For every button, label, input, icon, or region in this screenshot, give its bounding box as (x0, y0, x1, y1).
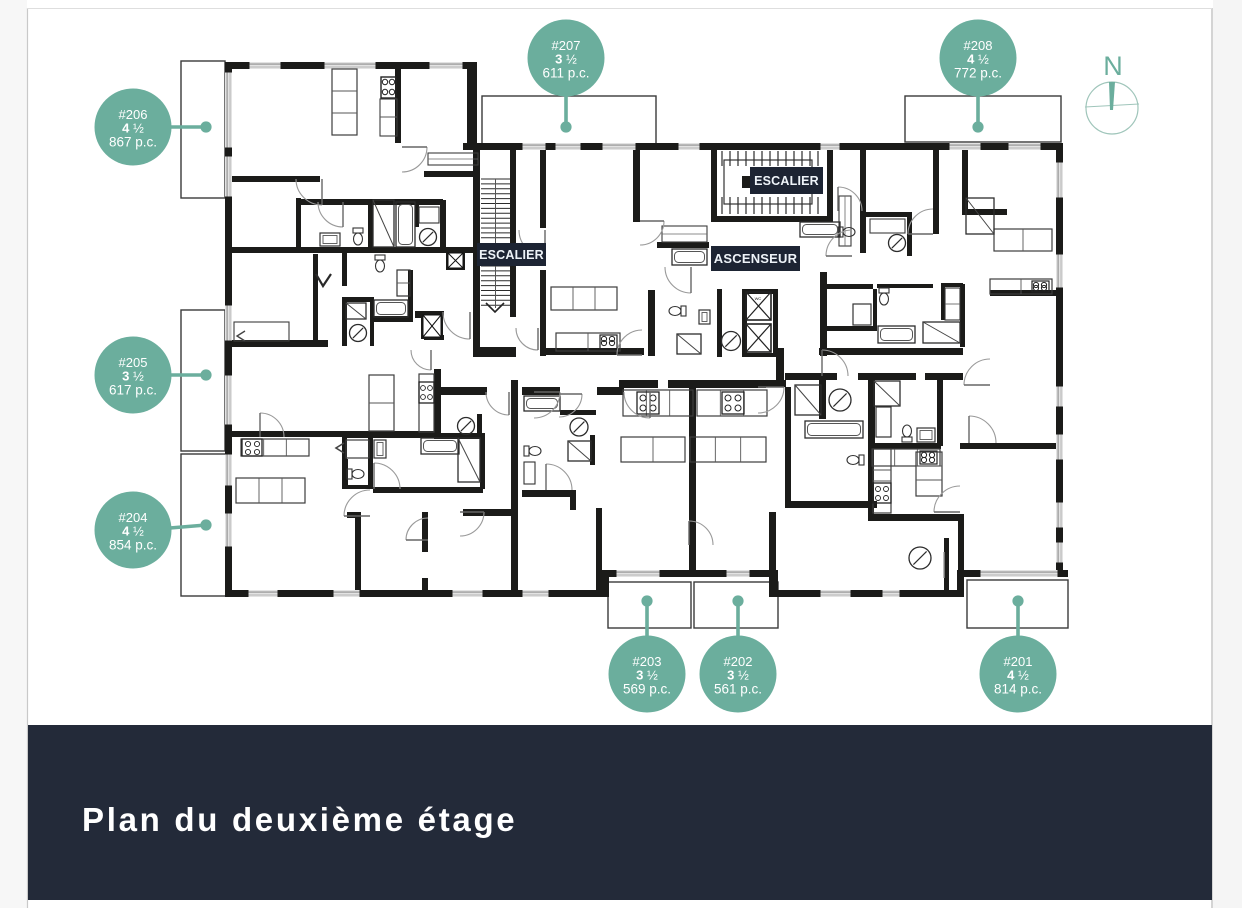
svg-text:3 ½: 3 ½ (555, 52, 577, 67)
svg-text:ASCENSEUR: ASCENSEUR (714, 251, 798, 266)
svg-text:3 ½: 3 ½ (122, 369, 144, 384)
svg-text:569 p.c.: 569 p.c. (623, 682, 671, 697)
svg-text:854 p.c.: 854 p.c. (109, 538, 157, 553)
svg-text:561 p.c.: 561 p.c. (714, 682, 762, 697)
svg-text:611 p.c.: 611 p.c. (542, 66, 589, 81)
svg-text:4 ½: 4 ½ (967, 52, 989, 67)
svg-text:4 ½: 4 ½ (1007, 668, 1029, 683)
svg-text:4 ½: 4 ½ (122, 121, 144, 136)
svg-text:3 ½: 3 ½ (727, 668, 749, 683)
svg-text:WC: WC (755, 296, 762, 301)
svg-text:N: N (1103, 51, 1123, 81)
svg-text:ESCALIER: ESCALIER (479, 248, 544, 262)
svg-text:772 p.c.: 772 p.c. (954, 66, 1002, 81)
svg-text:617 p.c.: 617 p.c. (109, 383, 157, 398)
svg-text:ESCALIER: ESCALIER (754, 174, 819, 188)
svg-text:4 ½: 4 ½ (122, 524, 144, 539)
svg-text:814 p.c.: 814 p.c. (994, 682, 1042, 697)
svg-text:3 ½: 3 ½ (636, 668, 658, 683)
svg-text:867 p.c.: 867 p.c. (109, 135, 157, 150)
svg-text:Plan du deuxième étage: Plan du deuxième étage (82, 801, 517, 838)
